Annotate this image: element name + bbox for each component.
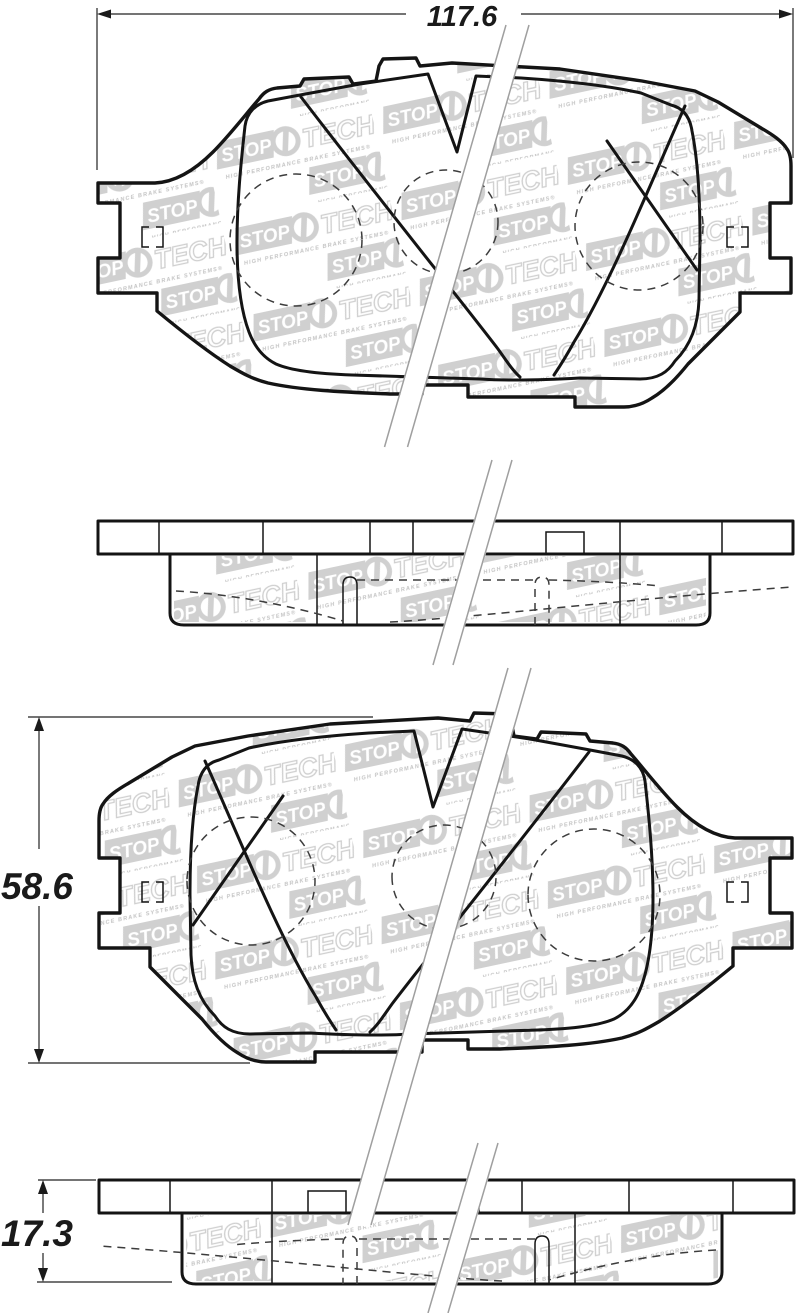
watermark-area-edge-view-1 <box>174 556 706 622</box>
dimension-height-value: 58.6 <box>1 866 73 907</box>
dimension-thickness-value: 17.3 <box>1 1213 73 1254</box>
brake-pad-drawing-page: STOP TECH HIGH PERFORMANCE BRAKE SYSTEMS… <box>0 0 800 1313</box>
arrowhead-up <box>38 1180 48 1194</box>
watermark-area-front-view-1 <box>96 56 794 410</box>
dimension-width-value: 117.6 <box>427 1 498 33</box>
dimension-thickness: 17.3 <box>1 1180 172 1282</box>
arrowhead-left <box>97 10 111 19</box>
technical-drawing-canvas: STOP TECH HIGH PERFORMANCE BRAKE SYSTEMS… <box>0 0 800 1313</box>
arrowhead-down <box>38 1268 48 1282</box>
arrowhead-right <box>779 10 793 19</box>
edge-backing-plate <box>98 521 793 554</box>
arrowhead-up <box>34 717 44 731</box>
arrowhead-down <box>34 1049 44 1063</box>
edge-plate-notch <box>546 532 584 554</box>
